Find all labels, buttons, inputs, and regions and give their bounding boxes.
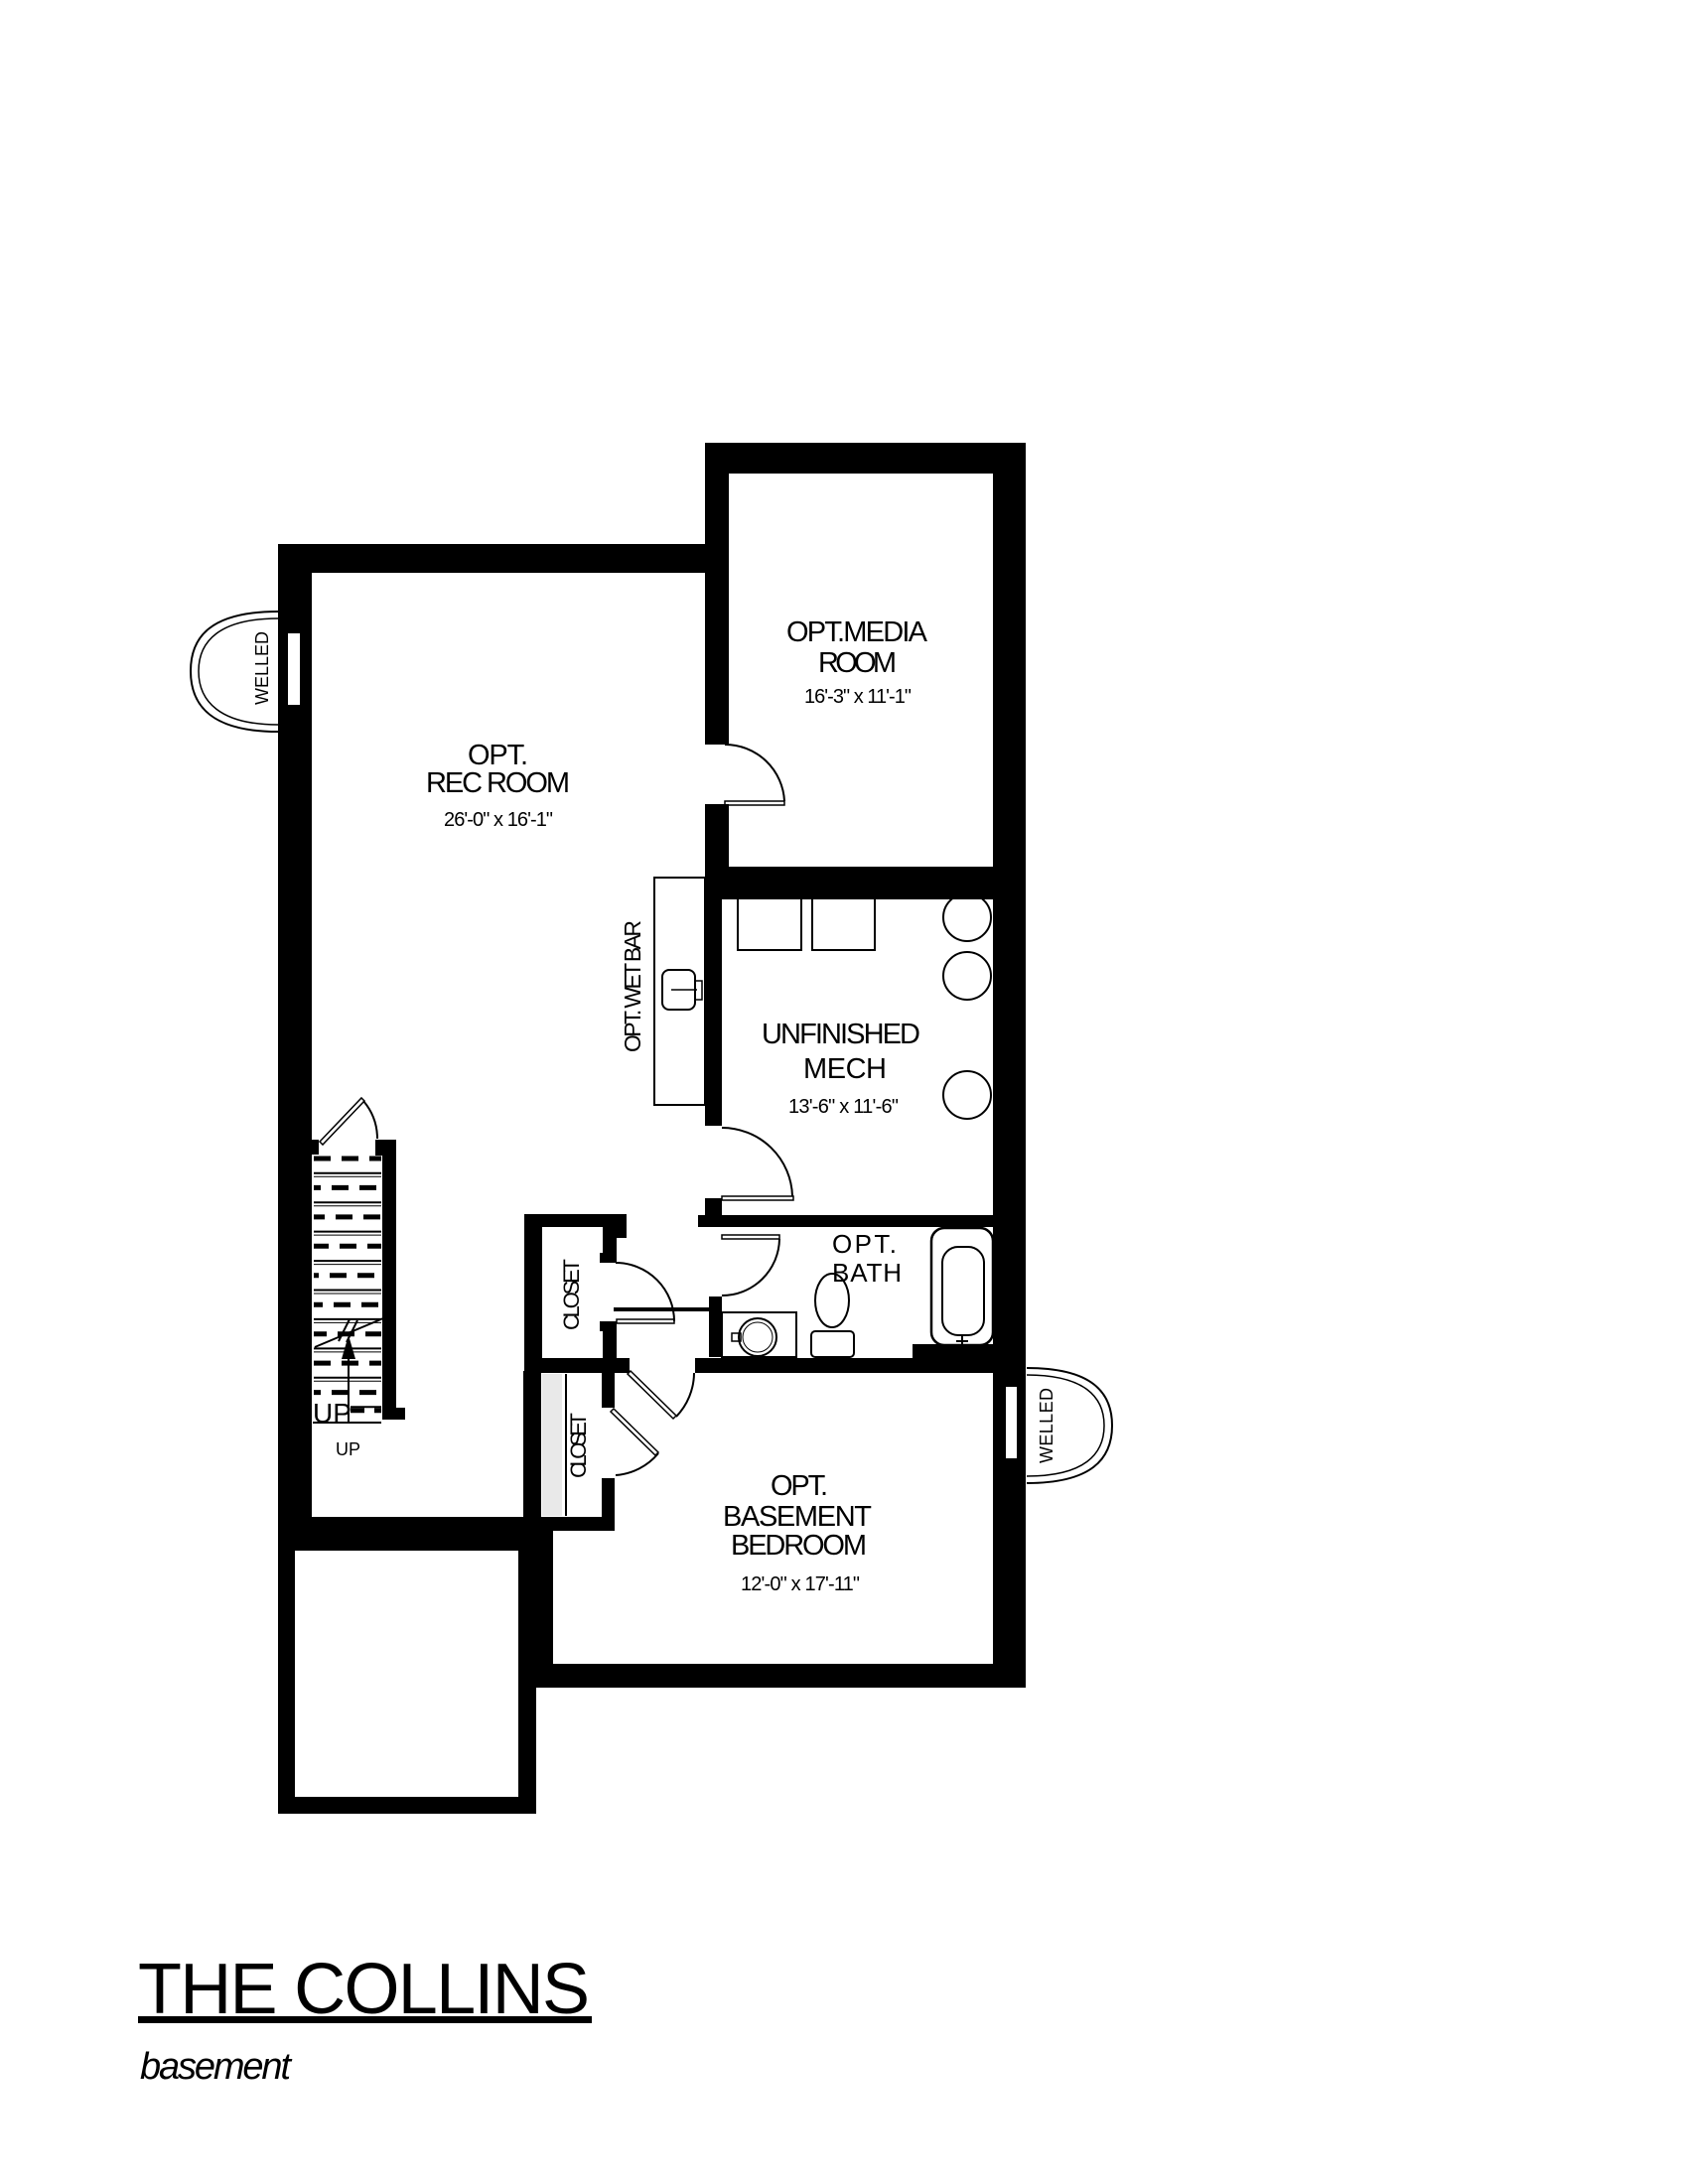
svg-text:UP: UP bbox=[336, 1439, 360, 1459]
svg-text:OPT.MEDIA: OPT.MEDIA bbox=[786, 616, 928, 648]
svg-text:16'-3" x 11'-1": 16'-3" x 11'-1" bbox=[804, 686, 912, 708]
svg-text:CLOSET: CLOSET bbox=[566, 1413, 591, 1478]
svg-text:OPT.: OPT. bbox=[832, 1229, 897, 1259]
svg-text:CLOSET: CLOSET bbox=[559, 1259, 584, 1330]
svg-text:WELLED: WELLED bbox=[252, 631, 272, 705]
svg-text:OPT. WET BAR: OPT. WET BAR bbox=[620, 920, 645, 1052]
svg-text:MECH: MECH bbox=[803, 1053, 887, 1085]
svg-text:OPT.: OPT. bbox=[771, 1470, 828, 1502]
svg-text:BEDROOM: BEDROOM bbox=[731, 1530, 867, 1562]
svg-text:basement: basement bbox=[140, 2046, 292, 2088]
svg-text:BASEMENT: BASEMENT bbox=[723, 1501, 872, 1533]
svg-text:12'-0" x 17'-11": 12'-0" x 17'-11" bbox=[741, 1573, 860, 1595]
svg-text:BATH: BATH bbox=[832, 1258, 902, 1288]
svg-text:26'-0" x 16'-1": 26'-0" x 16'-1" bbox=[444, 809, 553, 831]
svg-text:WELLED: WELLED bbox=[1037, 1388, 1056, 1463]
svg-text:UP: UP bbox=[313, 1398, 352, 1429]
svg-text:REC ROOM: REC ROOM bbox=[426, 767, 570, 799]
svg-text:13'-6" x 11'-6": 13'-6" x 11'-6" bbox=[788, 1096, 899, 1118]
svg-text:UNFINISHED: UNFINISHED bbox=[762, 1019, 920, 1050]
svg-text:ROOM: ROOM bbox=[818, 647, 897, 679]
